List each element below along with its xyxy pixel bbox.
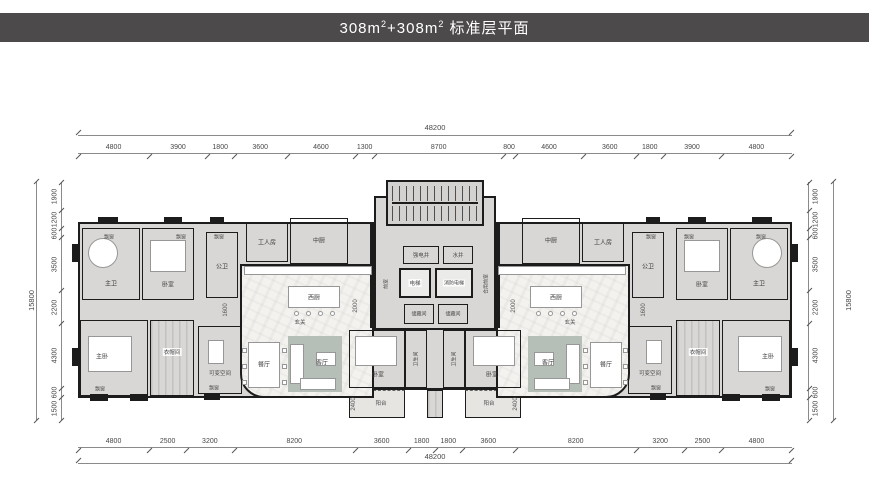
- label-balcony-left: 阳台: [375, 399, 386, 407]
- bay-window-tab: [650, 393, 666, 400]
- label-western-kitchen-right: 西厨: [550, 293, 562, 302]
- bay-window-tab: [164, 217, 182, 223]
- label-western-kitchen-left: 西厨: [308, 293, 320, 302]
- dim-seg: 800: [503, 143, 515, 153]
- bay-window-tab: [791, 348, 798, 366]
- label-master-bath-right: 主卫: [753, 279, 765, 288]
- label-bay-window: 飘窗: [651, 385, 661, 392]
- label-master-bedroom-left: 主卧: [96, 352, 108, 361]
- bathtub-right: [752, 238, 782, 268]
- bay-window-tab: [752, 217, 772, 223]
- dim-seg: 3600: [462, 437, 515, 447]
- label-bay-window: 飘窗: [104, 234, 114, 241]
- dim-interior-2000-left: 2000: [353, 299, 359, 312]
- master-bed-left: [88, 336, 132, 372]
- label-bedroom-bottom-right: 卧室: [486, 370, 498, 379]
- label-chinese-kitchen-right: 中厨: [545, 236, 557, 245]
- bay-window-tab: [98, 217, 118, 223]
- bed-top-left: [150, 240, 186, 272]
- label-bay-window: 飘窗: [765, 386, 775, 393]
- chair: [583, 364, 588, 369]
- label-flex-right: 可变空间: [639, 369, 661, 377]
- floor-plan-page: 308m2+308m2 标准层平面 48200 4800 3900 1800 3…: [0, 0, 869, 497]
- label-storage-right: 储藏间: [445, 311, 460, 318]
- room-cloakroom-left: [150, 320, 194, 396]
- dim-interior-2400-right: 2400: [513, 397, 519, 410]
- bed-top-right: [684, 240, 720, 272]
- bay-window-tab: [762, 394, 780, 401]
- dim-seg: 4800: [78, 437, 149, 447]
- chair: [282, 348, 287, 353]
- desk-flex-right: [646, 340, 662, 364]
- dim-bottom-segments: 4800 2500 3200 8200 3600 1800 1800 3600 …: [78, 437, 792, 448]
- label-storage-left: 储藏间: [411, 311, 426, 318]
- title-bar: 308m2+308m2 标准层平面: [0, 13, 869, 42]
- stair-run-upper: [392, 186, 478, 201]
- dim-seg: 4300: [809, 324, 822, 389]
- dim-seg: 2500: [684, 437, 721, 447]
- dim-seg: 1900: [809, 182, 822, 211]
- chair: [282, 364, 287, 369]
- label-bathroom-left: 卫生间: [413, 351, 420, 366]
- bay-window-tab: [722, 394, 740, 401]
- label-shaft-electric: 强电井: [413, 251, 430, 259]
- dim-seg: 600: [48, 388, 61, 397]
- dim-seg: 1500: [809, 397, 822, 420]
- label-bathroom-right: 卫生间: [451, 351, 458, 366]
- dim-seg: 3600: [583, 143, 636, 153]
- dim-interior-2000-right: 2000: [511, 299, 517, 312]
- label-balcony-right: 阳台: [483, 399, 494, 407]
- bay-window-tab: [72, 348, 79, 366]
- dim-seg: 3900: [663, 143, 721, 153]
- dim-right-segments: 1900 1200 600 3500 2200 4300 600 1500: [808, 182, 822, 420]
- bathtub-left: [88, 238, 118, 268]
- label-chinese-kitchen-left: 中厨: [313, 236, 325, 245]
- bed-bottom-left: [355, 336, 397, 366]
- dim-interior-2400-left: 2400: [351, 397, 357, 410]
- stool: [294, 311, 299, 316]
- room-cloakroom-right: [676, 320, 720, 396]
- stool: [318, 311, 323, 316]
- dim-left-total-line: [36, 182, 37, 420]
- label-bay-window: 飘窗: [756, 234, 766, 241]
- dim-seg: 3500: [809, 238, 822, 291]
- chair: [583, 380, 588, 385]
- label-bay-window: 飘窗: [684, 234, 694, 241]
- dim-top-segments: 4800 3900 1800 3600 4600 1300 8700 800 4…: [78, 143, 792, 154]
- dim-bottom-total-label: 48200: [78, 452, 792, 461]
- chair: [583, 348, 588, 353]
- label-master-bedroom-right: 主卧: [762, 352, 774, 361]
- dim-interior-1600-left: 1600: [223, 303, 229, 316]
- stool: [548, 311, 553, 316]
- dim-seg: 4800: [721, 143, 792, 153]
- stair-run-lower: [392, 206, 478, 221]
- chair: [282, 380, 287, 385]
- dim-right-total-label: 15800: [844, 290, 853, 311]
- dim-interior-1600-right: 1600: [641, 303, 647, 316]
- bay-window-tab: [130, 394, 148, 401]
- label-cloakroom-left: 衣帽间: [163, 348, 182, 356]
- dim-seg: 2500: [149, 437, 186, 447]
- kitchen-counter-left: [244, 266, 372, 275]
- dim-seg: 3600: [234, 143, 287, 153]
- label-front-room: 前室: [383, 279, 390, 289]
- label-dining-right: 餐厅: [600, 360, 612, 369]
- bay-window-tab: [90, 394, 108, 401]
- stool: [306, 311, 311, 316]
- label-maid-right: 工人房: [594, 238, 612, 247]
- dim-seg: 8200: [515, 437, 636, 447]
- label-fire-elevator: 消防电梯: [443, 280, 465, 287]
- dim-seg: 1900: [48, 182, 61, 211]
- bay-window-tab: [210, 217, 224, 223]
- label-bay-window: 飘窗: [95, 386, 105, 393]
- chair: [623, 380, 628, 385]
- bed-bottom-right: [473, 336, 515, 366]
- bay-window-tab: [72, 244, 79, 262]
- dim-bottom-total-line: [78, 463, 792, 464]
- label-foyer-left: 玄关: [294, 318, 305, 326]
- dim-left-total-label: 15800: [27, 290, 36, 311]
- desk-flex-left: [208, 340, 224, 364]
- sofa-left-chaise: [300, 378, 336, 390]
- kitchen-counter-right: [498, 266, 626, 275]
- dim-seg: 3600: [355, 437, 408, 447]
- dim-seg: 3200: [636, 437, 683, 447]
- dim-seg: 1800: [408, 437, 435, 447]
- dim-seg: 8700: [374, 143, 503, 153]
- dim-seg: 4800: [78, 143, 149, 153]
- label-guest-bath-right: 公卫: [642, 262, 654, 271]
- label-shared-lobby: 合用前室: [483, 274, 490, 294]
- label-elevator: 电梯: [408, 279, 421, 287]
- dim-seg: 1800: [207, 143, 234, 153]
- label-shaft-water: 水井: [452, 251, 463, 259]
- label-flex-left: 可变空间: [209, 369, 231, 377]
- bay-window-tab: [204, 393, 220, 400]
- label-maid-left: 工人房: [258, 238, 276, 247]
- dim-seg: 1300: [355, 143, 374, 153]
- bay-window-tab: [791, 244, 798, 262]
- party-wall-right: [495, 224, 500, 328]
- page-title: 308m2+308m2 标准层平面: [339, 17, 529, 38]
- stool: [572, 311, 577, 316]
- dim-seg: 1800: [435, 437, 462, 447]
- dim-seg: 3900: [149, 143, 207, 153]
- sofa-right-chaise: [534, 378, 570, 390]
- dim-seg: 8200: [234, 437, 355, 447]
- label-dining-left: 餐厅: [258, 360, 270, 369]
- label-bedroom-bottom-left: 卧室: [372, 370, 384, 379]
- dim-right-total-line: [833, 182, 834, 420]
- duct-column-bottom: [427, 390, 443, 418]
- stool: [536, 311, 541, 316]
- dim-seg: 1200: [48, 211, 61, 229]
- bay-window-tab: [646, 217, 660, 223]
- label-bedroom-top-right: 卧室: [696, 280, 708, 289]
- stool: [560, 311, 565, 316]
- dim-seg: 1500: [48, 397, 61, 420]
- dim-seg: 2200: [48, 290, 61, 323]
- dim-seg: 600: [48, 229, 61, 238]
- chair: [623, 364, 628, 369]
- chair: [242, 348, 247, 353]
- label-bedroom-top-left: 卧室: [162, 280, 174, 289]
- label-living-right: 客厅: [542, 358, 554, 367]
- label-foyer-right: 玄关: [564, 318, 575, 326]
- dim-seg: 3200: [186, 437, 233, 447]
- dim-seg: 4300: [48, 324, 61, 389]
- dim-seg: 1800: [636, 143, 663, 153]
- dim-seg: 2200: [809, 290, 822, 323]
- chair: [242, 364, 247, 369]
- label-living-left: 客厅: [316, 358, 328, 367]
- dim-top-total-label: 48200: [78, 123, 792, 132]
- label-bay-window: 飘窗: [646, 234, 656, 241]
- label-cloakroom-right: 衣帽间: [689, 348, 708, 356]
- bay-window-tab: [688, 217, 706, 223]
- label-guest-bath-left: 公卫: [216, 262, 228, 271]
- label-master-bath-left: 主卫: [105, 279, 117, 288]
- dim-seg: 4600: [515, 143, 583, 153]
- label-bay-window: 飘窗: [209, 385, 219, 392]
- party-wall-left: [370, 224, 375, 328]
- label-bay-window: 飘窗: [176, 234, 186, 241]
- label-bay-window: 飘窗: [214, 234, 224, 241]
- dim-seg: 4800: [721, 437, 792, 447]
- chair: [623, 348, 628, 353]
- chair: [242, 380, 247, 385]
- dim-seg: 3500: [48, 238, 61, 291]
- stair-divider: [392, 202, 478, 204]
- dim-seg: 4600: [287, 143, 355, 153]
- stool: [330, 311, 335, 316]
- dim-top-total-line: [78, 135, 792, 136]
- dim-left-segments: 1900 1200 600 3500 2200 4300 600 1500: [48, 182, 62, 420]
- master-bed-right: [738, 336, 782, 372]
